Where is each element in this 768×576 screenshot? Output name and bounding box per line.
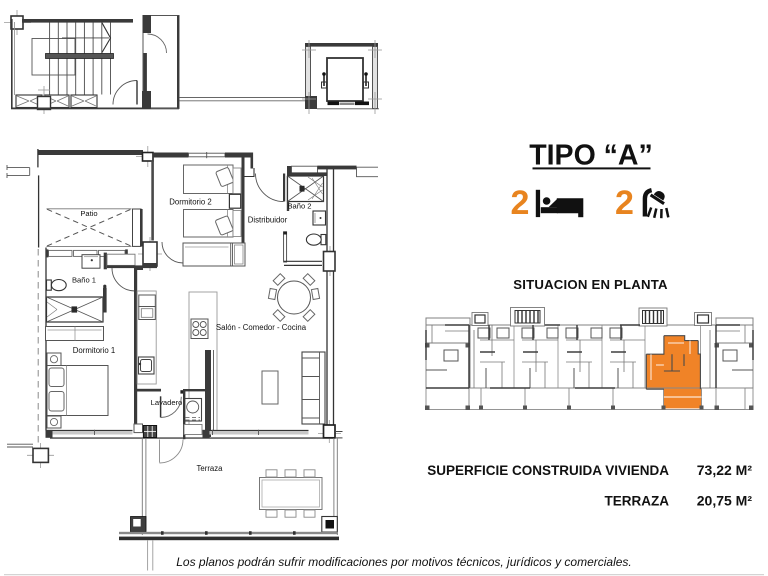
svg-text:Distribuidor: Distribuidor (248, 216, 288, 225)
svg-text:SITUACION EN PLANTA: SITUACION EN PLANTA (513, 277, 668, 292)
svg-text:SUPERFICIE CONSTRUIDA VIVIENDA: SUPERFICIE CONSTRUIDA VIVIENDA (427, 463, 669, 478)
svg-text:TIPO “A”: TIPO “A” (529, 140, 653, 172)
svg-text:Patio: Patio (80, 209, 97, 218)
svg-text:20,75 M²: 20,75 M² (697, 493, 753, 509)
svg-text:Salón - Comedor - Cocina: Salón - Comedor - Cocina (216, 323, 307, 332)
svg-text:Terraza: Terraza (197, 464, 224, 473)
svg-text:Los planos podrán sufrir modif: Los planos podrán sufrir modificaciones … (176, 555, 632, 569)
svg-text:Dormitorio 2: Dormitorio 2 (169, 197, 211, 206)
svg-text:Dormitorio 1: Dormitorio 1 (73, 346, 115, 355)
svg-text:73,22 M²: 73,22 M² (697, 462, 753, 478)
svg-text:Baño 2: Baño 2 (287, 201, 311, 210)
svg-text:2: 2 (511, 184, 530, 222)
svg-text:TERRAZA: TERRAZA (605, 494, 670, 509)
svg-text:2: 2 (615, 184, 634, 222)
svg-text:Lavadero: Lavadero (151, 398, 183, 407)
svg-text:Baño 1: Baño 1 (72, 275, 96, 284)
